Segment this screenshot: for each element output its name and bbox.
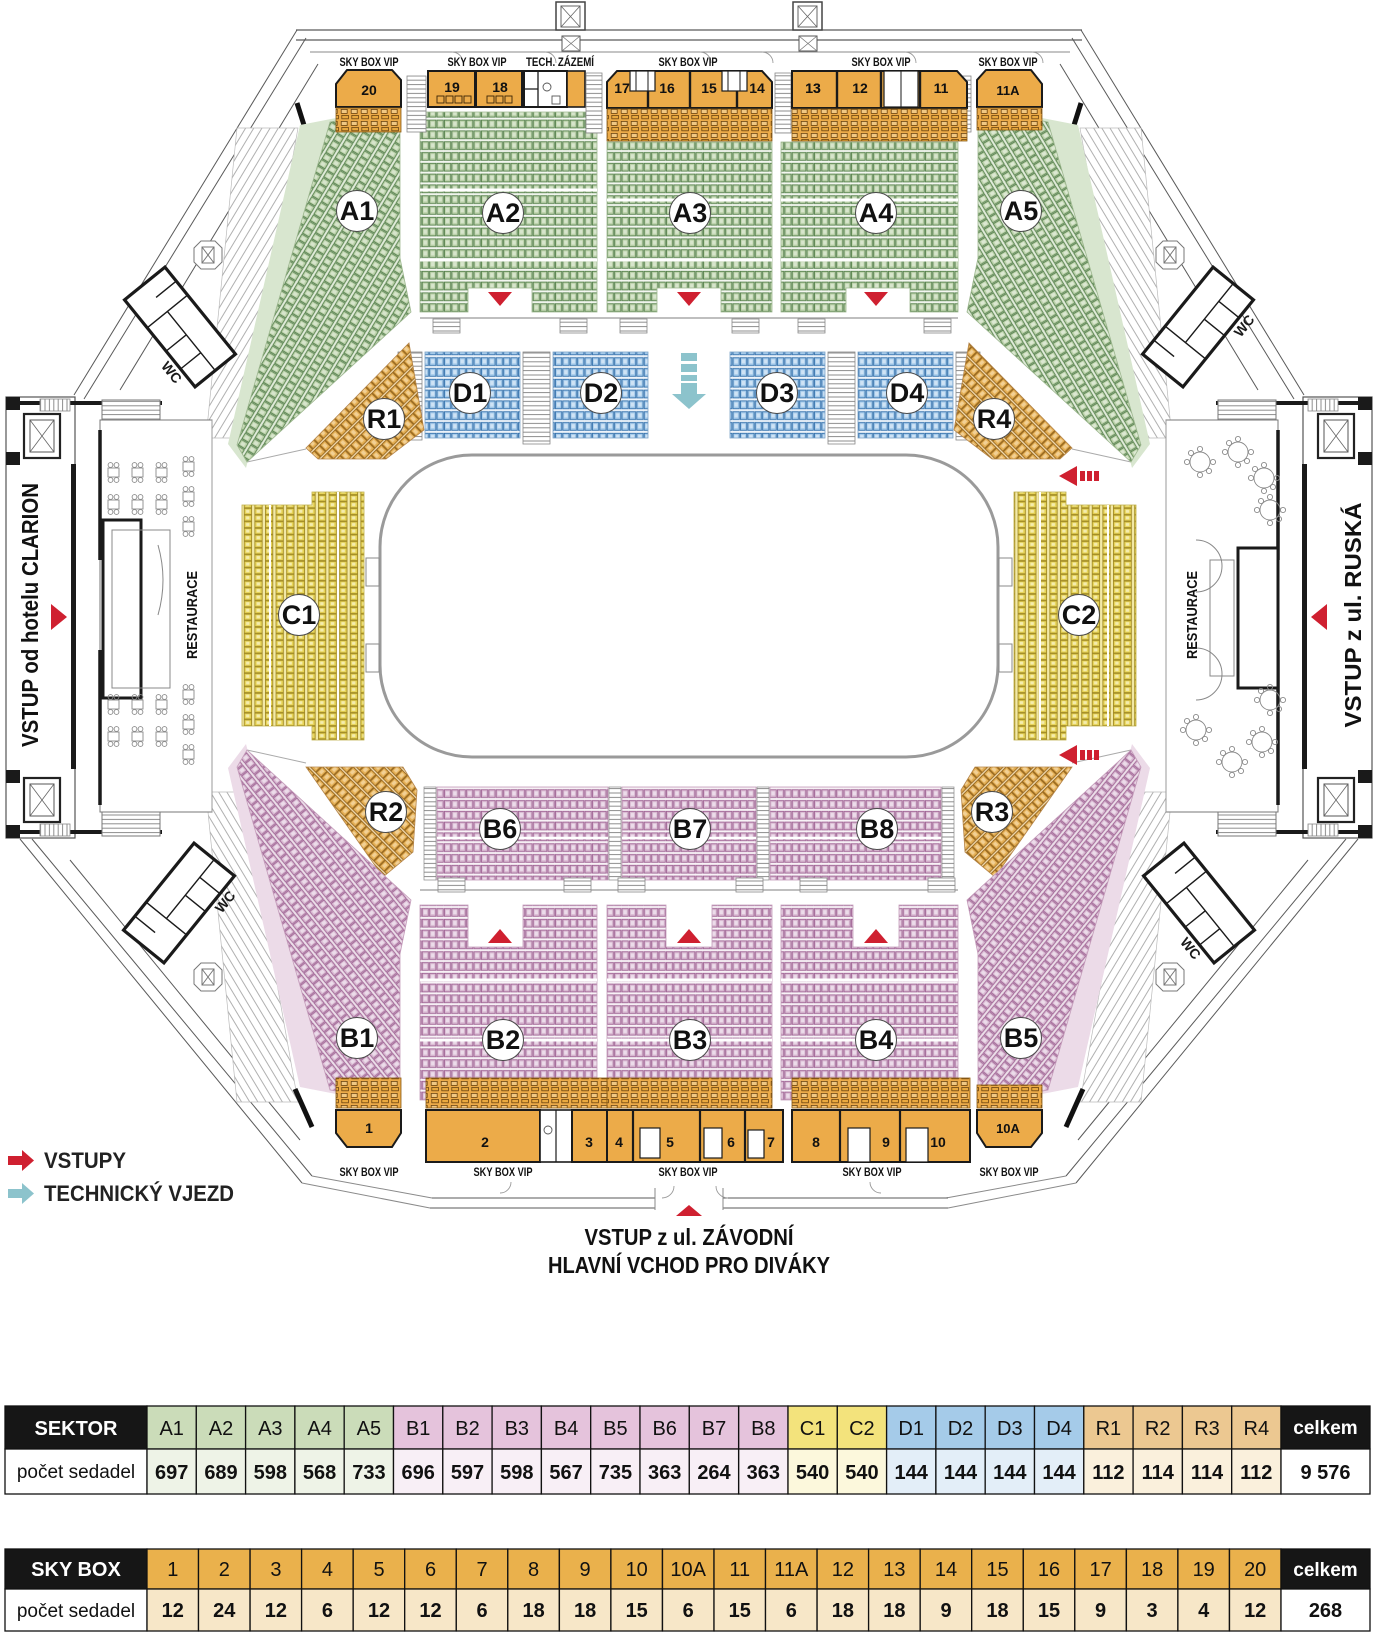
svg-text:8: 8 [812,1134,820,1150]
svg-text:144: 144 [993,1462,1027,1484]
svg-text:SKY BOX VIP: SKY BOX VIP [843,1167,902,1179]
svg-text:B1: B1 [406,1418,430,1440]
svg-text:2: 2 [219,1559,230,1581]
svg-text:6: 6 [322,1600,333,1622]
svg-text:4: 4 [615,1134,623,1150]
svg-text:celkem: celkem [1293,1418,1357,1439]
svg-text:12: 12 [1244,1600,1266,1622]
svg-text:6: 6 [786,1600,797,1622]
svg-text:9: 9 [1095,1600,1106,1622]
svg-text:TECHNICKÝ VJEZD: TECHNICKÝ VJEZD [44,1181,234,1206]
svg-text:A1: A1 [159,1418,183,1440]
svg-text:SKY BOX VIP: SKY BOX VIP [979,57,1038,69]
svg-text:689: 689 [204,1462,237,1484]
svg-text:D3: D3 [760,378,795,408]
svg-text:10A: 10A [670,1559,706,1581]
svg-text:14: 14 [935,1559,957,1581]
svg-text:3: 3 [1147,1600,1158,1622]
svg-text:18: 18 [1141,1559,1163,1581]
svg-text:7: 7 [476,1559,487,1581]
svg-text:568: 568 [303,1462,336,1484]
svg-text:3: 3 [270,1559,281,1581]
svg-text:144: 144 [1042,1462,1076,1484]
svg-text:A5: A5 [357,1418,381,1440]
svg-text:SKY BOX VIP: SKY BOX VIP [340,57,399,69]
svg-text:B2: B2 [486,1025,521,1055]
svg-text:10: 10 [930,1134,946,1150]
svg-text:A2: A2 [209,1418,233,1440]
svg-text:SKY BOX: SKY BOX [31,1559,121,1581]
svg-text:HLAVNÍ VCHOD PRO DIVÁKY: HLAVNÍ VCHOD PRO DIVÁKY [548,1251,830,1278]
svg-text:12: 12 [852,80,868,96]
svg-text:VSTUP z ul. RUSKÁ: VSTUP z ul. RUSKÁ [1339,503,1366,728]
svg-text:počet sedadel: počet sedadel [17,1462,135,1483]
svg-text:B3: B3 [673,1025,708,1055]
svg-text:15: 15 [1038,1600,1060,1622]
svg-text:18: 18 [986,1600,1008,1622]
svg-text:20: 20 [361,82,377,98]
svg-text:A4: A4 [307,1418,331,1440]
svg-text:B6: B6 [483,814,518,844]
svg-text:11: 11 [934,80,949,96]
svg-text:1: 1 [365,1120,373,1136]
svg-text:3: 3 [585,1134,593,1150]
svg-text:112: 112 [1240,1462,1272,1484]
svg-text:12: 12 [265,1600,287,1622]
svg-text:9 576: 9 576 [1300,1462,1350,1484]
svg-text:14: 14 [749,80,765,96]
svg-text:114: 114 [1142,1462,1175,1484]
svg-text:18: 18 [522,1600,544,1622]
svg-text:R2: R2 [369,797,404,827]
svg-text:C1: C1 [800,1418,826,1440]
svg-text:B5: B5 [1004,1023,1039,1053]
svg-text:9: 9 [580,1559,591,1581]
svg-text:12: 12 [368,1600,390,1622]
svg-text:SEKTOR: SEKTOR [35,1418,119,1440]
svg-text:5: 5 [373,1559,384,1581]
svg-text:počet sedadel: počet sedadel [17,1601,135,1622]
svg-text:C1: C1 [282,600,317,630]
svg-text:B3: B3 [505,1418,529,1440]
svg-text:15: 15 [986,1559,1008,1581]
svg-text:RESTAURACE: RESTAURACE [1184,571,1201,659]
svg-text:A1: A1 [340,196,375,226]
svg-text:11A: 11A [996,83,1020,98]
svg-text:R1: R1 [367,404,402,434]
svg-text:17: 17 [614,80,630,96]
svg-text:697: 697 [155,1462,188,1484]
svg-text:R1: R1 [1096,1418,1122,1440]
svg-text:24: 24 [213,1600,236,1622]
svg-text:8: 8 [528,1559,539,1581]
svg-text:15: 15 [701,80,717,96]
svg-text:540: 540 [796,1462,829,1484]
svg-text:363: 363 [747,1462,780,1484]
svg-text:SKY BOX VIP: SKY BOX VIP [659,57,718,69]
svg-text:13: 13 [883,1559,905,1581]
svg-text:B6: B6 [652,1418,676,1440]
svg-text:R3: R3 [975,797,1010,827]
svg-text:A4: A4 [859,198,894,228]
svg-text:7: 7 [767,1134,775,1150]
svg-text:A3: A3 [673,198,708,228]
svg-text:SKY BOX VIP: SKY BOX VIP [474,1167,533,1179]
svg-text:VSTUP z ul. ZÁVODNÍ: VSTUP z ul. ZÁVODNÍ [585,1223,795,1250]
svg-text:19: 19 [444,79,460,95]
svg-text:12: 12 [419,1600,441,1622]
svg-text:20: 20 [1244,1559,1266,1581]
svg-text:15: 15 [729,1600,751,1622]
svg-text:19: 19 [1193,1559,1215,1581]
svg-text:11: 11 [729,1559,750,1581]
svg-text:6: 6 [425,1559,436,1581]
svg-text:R2: R2 [1145,1418,1171,1440]
svg-text:SKY BOX VIP: SKY BOX VIP [448,57,507,69]
svg-text:6: 6 [727,1134,735,1150]
svg-text:A3: A3 [258,1418,282,1440]
svg-text:540: 540 [845,1462,878,1484]
svg-text:18: 18 [883,1600,905,1622]
svg-text:TECH. ZÁZEMÍ: TECH. ZÁZEMÍ [526,56,595,69]
svg-text:6: 6 [683,1600,694,1622]
svg-text:4: 4 [1198,1600,1210,1622]
svg-text:VSTUP od hotelu CLARION: VSTUP od hotelu CLARION [17,483,43,747]
svg-text:144: 144 [895,1462,929,1484]
svg-text:B8: B8 [751,1418,775,1440]
svg-text:18: 18 [832,1600,854,1622]
svg-text:15: 15 [626,1600,648,1622]
svg-text:R3: R3 [1194,1418,1220,1440]
svg-text:598: 598 [500,1462,533,1484]
svg-text:598: 598 [254,1462,287,1484]
svg-text:D2: D2 [948,1418,974,1440]
svg-text:1: 1 [167,1559,178,1581]
svg-text:D1: D1 [898,1418,924,1440]
svg-text:567: 567 [549,1462,582,1484]
svg-text:10: 10 [626,1559,648,1581]
svg-text:12: 12 [162,1600,184,1622]
svg-text:R4: R4 [977,404,1012,434]
svg-text:733: 733 [352,1462,385,1484]
svg-text:B7: B7 [673,814,708,844]
svg-text:4: 4 [322,1559,333,1581]
svg-text:D4: D4 [1046,1418,1072,1440]
svg-text:A5: A5 [1004,196,1039,226]
svg-text:17: 17 [1089,1559,1111,1581]
svg-text:B4: B4 [554,1418,578,1440]
svg-text:112: 112 [1092,1462,1124,1484]
svg-text:735: 735 [599,1462,632,1484]
svg-text:D3: D3 [997,1418,1023,1440]
svg-text:SKY BOX VIP: SKY BOX VIP [659,1167,718,1179]
svg-text:SKY BOX VIP: SKY BOX VIP [980,1167,1039,1179]
svg-text:SKY BOX VIP: SKY BOX VIP [340,1167,399,1179]
svg-text:144: 144 [944,1462,978,1484]
svg-text:16: 16 [659,80,675,96]
svg-text:C2: C2 [849,1418,875,1440]
svg-text:11A: 11A [774,1559,809,1581]
svg-text:B8: B8 [860,814,895,844]
svg-text:114: 114 [1191,1462,1224,1484]
svg-text:9: 9 [940,1600,951,1622]
svg-text:10A: 10A [996,1121,1020,1136]
svg-text:R4: R4 [1244,1418,1270,1440]
svg-text:2: 2 [481,1134,489,1150]
svg-text:18: 18 [574,1600,596,1622]
svg-text:SKY BOX VIP: SKY BOX VIP [852,57,911,69]
svg-text:13: 13 [805,80,821,96]
svg-text:D1: D1 [453,378,488,408]
svg-text:B5: B5 [603,1418,627,1440]
svg-text:9: 9 [882,1134,890,1150]
svg-text:A2: A2 [486,198,521,228]
svg-text:D4: D4 [890,378,925,408]
svg-text:celkem: celkem [1293,1560,1357,1581]
svg-text:C2: C2 [1062,600,1097,630]
svg-text:B7: B7 [702,1418,726,1440]
svg-text:6: 6 [476,1600,487,1622]
svg-text:12: 12 [832,1559,854,1581]
svg-text:VSTUPY: VSTUPY [44,1148,126,1173]
svg-text:597: 597 [451,1462,484,1484]
svg-text:5: 5 [666,1134,674,1150]
svg-text:B1: B1 [340,1023,375,1053]
svg-text:696: 696 [402,1462,435,1484]
svg-text:B2: B2 [455,1418,479,1440]
svg-text:RESTAURACE: RESTAURACE [184,571,201,659]
svg-text:264: 264 [697,1462,731,1484]
svg-text:268: 268 [1309,1600,1342,1622]
svg-text:363: 363 [648,1462,681,1484]
svg-text:D2: D2 [584,378,619,408]
svg-text:B4: B4 [859,1025,894,1055]
svg-text:16: 16 [1038,1559,1060,1581]
svg-text:18: 18 [492,79,508,95]
